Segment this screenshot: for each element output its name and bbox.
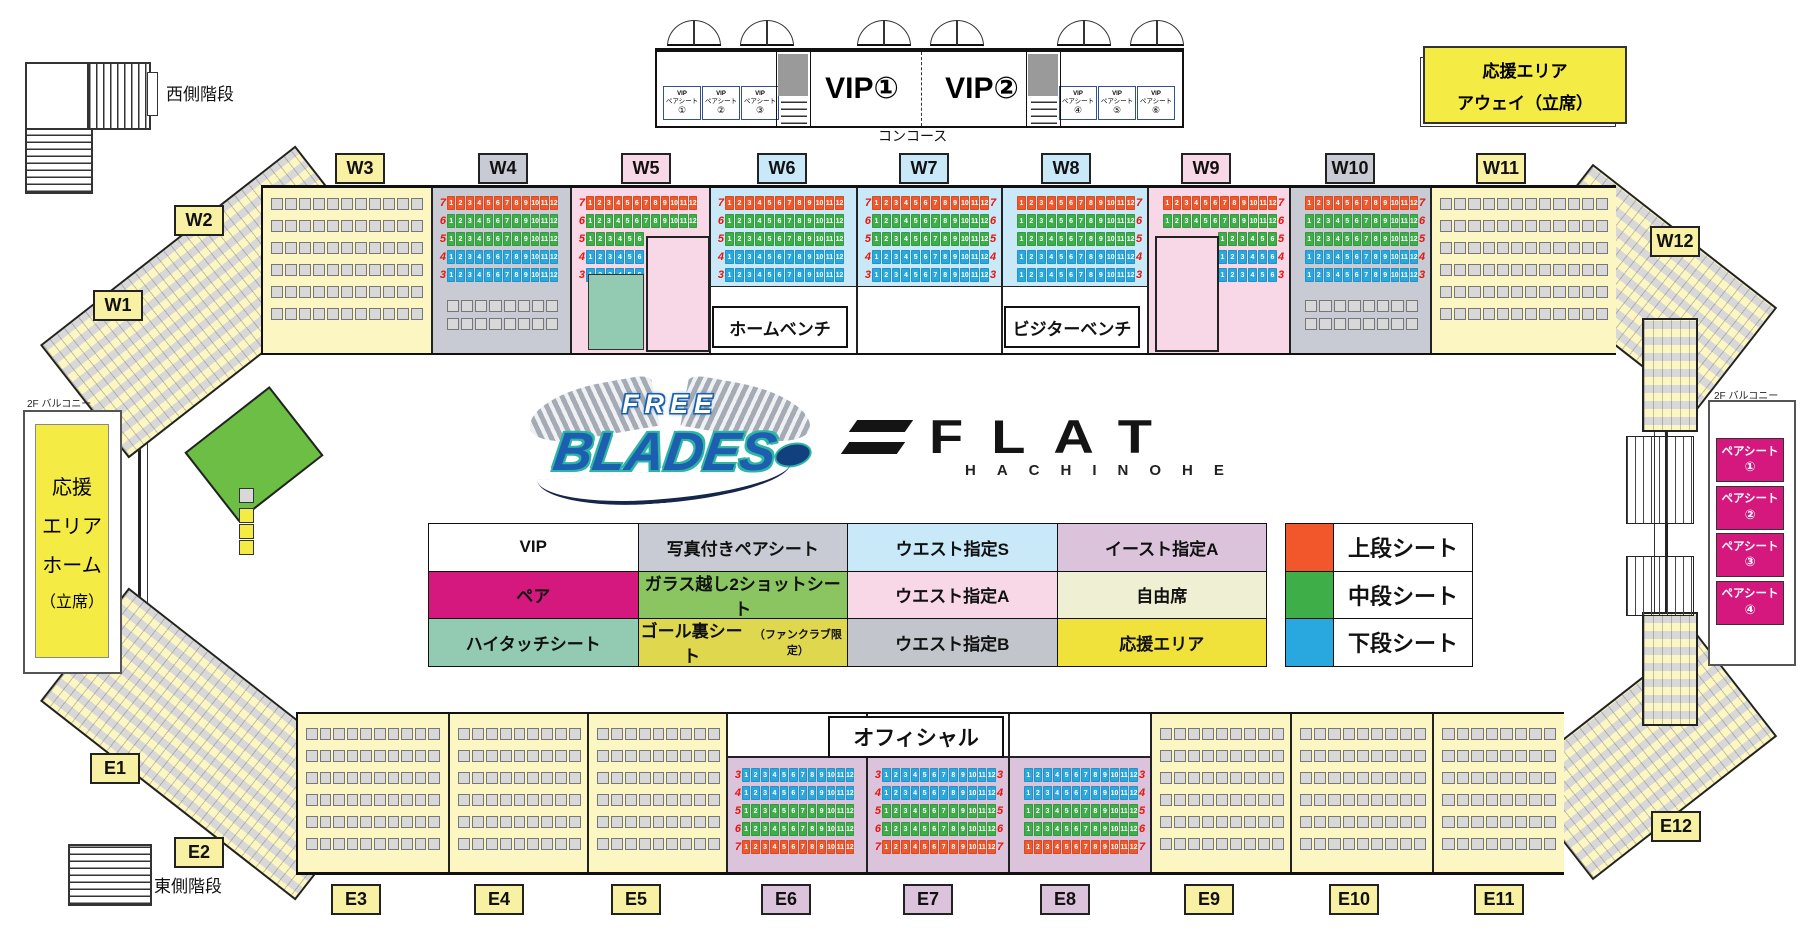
row-number: 3 bbox=[1136, 269, 1148, 281]
seat bbox=[388, 728, 400, 740]
seat-row: 123456789101112 bbox=[725, 232, 844, 246]
edge-marker-box bbox=[239, 488, 254, 503]
seat: 11 bbox=[1120, 822, 1129, 836]
seat: 6 bbox=[633, 196, 641, 210]
seat: 3 bbox=[901, 768, 910, 782]
row-number: 3 bbox=[1139, 769, 1151, 781]
seat: 1 bbox=[447, 250, 455, 264]
home-area-line4: （立席） bbox=[40, 588, 104, 612]
seat bbox=[397, 220, 409, 232]
legend-cell: イースト指定A bbox=[1058, 524, 1268, 572]
tier-legend: 上段シート中段シート下段シート bbox=[1285, 523, 1473, 667]
seat-row: 123456789101112 bbox=[882, 786, 996, 800]
seat: 8 bbox=[941, 250, 950, 264]
seat bbox=[360, 772, 372, 784]
seat: 8 bbox=[1372, 250, 1381, 264]
edge-marker-box bbox=[239, 508, 254, 523]
legend-row: ペアガラス越し2ショットシートウエスト指定A自由席 bbox=[429, 572, 1267, 620]
seat: 6 bbox=[494, 196, 502, 210]
seat: 4 bbox=[1192, 196, 1201, 210]
seat bbox=[1414, 772, 1426, 784]
seat bbox=[1400, 794, 1412, 806]
free-seat-row bbox=[1442, 728, 1556, 740]
seat: 5 bbox=[623, 214, 631, 228]
seat: 4 bbox=[1053, 786, 1062, 800]
seat bbox=[415, 794, 427, 806]
seat: 10 bbox=[1110, 768, 1119, 782]
pair-seat-row bbox=[1305, 300, 1418, 312]
seat bbox=[360, 838, 372, 850]
seat bbox=[1272, 794, 1284, 806]
seat: 4 bbox=[475, 250, 483, 264]
seat: 9 bbox=[1101, 768, 1110, 782]
seat: 5 bbox=[911, 214, 920, 228]
row-number: 5 bbox=[997, 805, 1009, 817]
seat bbox=[1258, 838, 1270, 850]
seat: 1 bbox=[1017, 250, 1026, 264]
seat: 3 bbox=[1043, 822, 1052, 836]
seat-row: 123456 bbox=[586, 250, 644, 264]
seat bbox=[1385, 750, 1397, 762]
seat bbox=[1486, 838, 1499, 850]
seat bbox=[1468, 242, 1480, 254]
seat bbox=[1272, 816, 1284, 828]
seat bbox=[1160, 816, 1172, 828]
seat-row: 123456 bbox=[586, 232, 644, 246]
seat: 12 bbox=[835, 268, 844, 282]
seat bbox=[388, 772, 400, 784]
seat bbox=[1363, 318, 1375, 330]
seat bbox=[1500, 772, 1513, 784]
seat: 5 bbox=[1201, 214, 1210, 228]
seat: 2 bbox=[595, 214, 603, 228]
legend-label: ペア bbox=[516, 582, 550, 607]
seat: 5 bbox=[1343, 232, 1352, 246]
seat: 2 bbox=[882, 250, 891, 264]
hi-touch-area bbox=[588, 274, 644, 350]
pair-seat-label: ペアシート bbox=[1721, 587, 1778, 601]
legend-label: 応援エリア bbox=[1119, 630, 1204, 655]
seat-row: 123456789101112 bbox=[1024, 822, 1138, 836]
row-number: 4 bbox=[859, 251, 871, 263]
wall-line bbox=[776, 52, 777, 126]
legend-cell: ウエスト指定S bbox=[848, 524, 1058, 572]
row-number: 7 bbox=[1136, 197, 1148, 209]
seat: 7 bbox=[785, 268, 794, 282]
seat: 6 bbox=[1067, 232, 1076, 246]
row-number: 7 bbox=[573, 197, 585, 209]
seat bbox=[541, 728, 553, 740]
seat bbox=[1471, 728, 1484, 740]
seat bbox=[486, 728, 498, 740]
tier-row: 下段シート bbox=[1286, 619, 1473, 667]
seat bbox=[299, 198, 311, 210]
seat-row: 123456789101112 bbox=[742, 786, 854, 800]
seat: 10 bbox=[1110, 822, 1119, 836]
seat: 6 bbox=[930, 804, 939, 818]
seat bbox=[383, 264, 395, 276]
seat-section-w9: 1234567891011127123456789101112612345651… bbox=[1147, 188, 1291, 353]
seat bbox=[1442, 816, 1455, 828]
seat bbox=[1314, 794, 1326, 806]
seat: 4 bbox=[901, 214, 910, 228]
seat bbox=[320, 728, 332, 740]
seat bbox=[306, 772, 318, 784]
legend-cell: 写真付きペアシート bbox=[639, 524, 849, 572]
seat: 7 bbox=[939, 840, 948, 854]
seat bbox=[708, 772, 720, 784]
seat: 3 bbox=[606, 232, 615, 246]
seat bbox=[1582, 198, 1594, 210]
seat: 4 bbox=[1047, 214, 1056, 228]
seat bbox=[1244, 794, 1256, 806]
seat: 6 bbox=[789, 840, 797, 854]
seat: 9 bbox=[959, 804, 968, 818]
seat bbox=[486, 838, 498, 850]
row-number: 7 bbox=[990, 197, 1002, 209]
section-label-e9: E9 bbox=[1184, 884, 1234, 915]
door-leaf bbox=[957, 20, 984, 46]
seat bbox=[306, 838, 318, 850]
seat bbox=[369, 242, 381, 254]
seat bbox=[1596, 286, 1608, 298]
seat: 1 bbox=[586, 214, 594, 228]
seat: 9 bbox=[1381, 232, 1390, 246]
vip-box-number: ③ bbox=[756, 105, 764, 115]
seat: 12 bbox=[980, 268, 989, 282]
seat bbox=[546, 300, 558, 312]
seat bbox=[1385, 816, 1397, 828]
seat: 12 bbox=[1410, 268, 1419, 282]
seat: 12 bbox=[550, 268, 558, 282]
seat bbox=[1300, 750, 1312, 762]
row-number: 3 bbox=[859, 269, 871, 281]
seat: 7 bbox=[931, 250, 940, 264]
seat: 1 bbox=[872, 214, 881, 228]
seat bbox=[708, 728, 720, 740]
row-number: 6 bbox=[990, 215, 1002, 227]
seat bbox=[666, 728, 678, 740]
seat-row: 123456789101112 bbox=[882, 768, 996, 782]
section-label-w7: W7 bbox=[899, 153, 949, 184]
right-edge-seating-bottom bbox=[1642, 612, 1698, 726]
seat bbox=[360, 816, 372, 828]
seat: 4 bbox=[901, 196, 910, 210]
seat: 9 bbox=[1240, 214, 1249, 228]
seat: 1 bbox=[882, 804, 891, 818]
seat: 1 bbox=[742, 786, 750, 800]
seat: 6 bbox=[1067, 214, 1076, 228]
row-number: 7 bbox=[712, 197, 724, 209]
seat bbox=[1483, 198, 1495, 210]
row-number: 4 bbox=[573, 251, 585, 263]
seat: 5 bbox=[484, 268, 492, 282]
seat bbox=[1497, 308, 1509, 320]
seat: 2 bbox=[735, 250, 744, 264]
seat: 11 bbox=[1400, 268, 1409, 282]
seat bbox=[1343, 772, 1355, 784]
vip-box-number: ① bbox=[678, 105, 686, 115]
room-area bbox=[646, 236, 710, 352]
seat: 4 bbox=[614, 196, 622, 210]
seat bbox=[1525, 220, 1537, 232]
seat: 9 bbox=[817, 822, 825, 836]
seat bbox=[639, 728, 651, 740]
seat bbox=[1568, 242, 1580, 254]
seat: 11 bbox=[836, 768, 844, 782]
seat: 5 bbox=[780, 768, 788, 782]
wall-line bbox=[1060, 52, 1061, 126]
seat-row: 123456789101112 bbox=[447, 196, 558, 210]
vip-pair-seat-box: VIPペアシート② bbox=[702, 86, 740, 120]
seat bbox=[333, 816, 345, 828]
seat bbox=[1511, 220, 1523, 232]
seat bbox=[1539, 286, 1551, 298]
seat bbox=[306, 750, 318, 762]
seat: 2 bbox=[456, 250, 464, 264]
seat bbox=[1202, 838, 1214, 850]
seat-rows-texture bbox=[1644, 614, 1696, 724]
free-seat-row bbox=[458, 816, 581, 828]
tier-label: 中段シート bbox=[1334, 572, 1473, 620]
seat: 3 bbox=[1324, 214, 1333, 228]
seat bbox=[347, 794, 359, 806]
section-label-w10: W10 bbox=[1325, 153, 1375, 184]
seat: 8 bbox=[808, 840, 816, 854]
seat: 1 bbox=[742, 804, 750, 818]
seat: 3 bbox=[1238, 232, 1247, 246]
seat: 5 bbox=[1201, 196, 1210, 210]
seat bbox=[383, 242, 395, 254]
seat: 8 bbox=[1230, 214, 1239, 228]
seat: 9 bbox=[522, 250, 530, 264]
seat bbox=[1371, 728, 1383, 740]
seat: 2 bbox=[456, 214, 464, 228]
seat: 3 bbox=[892, 232, 901, 246]
home-area-box: 応援 エリア ホーム （立席） bbox=[35, 424, 109, 658]
seat: 4 bbox=[1047, 268, 1056, 282]
flat-mark-bar bbox=[849, 420, 913, 432]
seat: 3 bbox=[466, 214, 474, 228]
seat: 3 bbox=[466, 232, 474, 246]
door-leaf bbox=[694, 20, 721, 46]
section-label-e2: E2 bbox=[174, 837, 224, 868]
seat: 1 bbox=[1305, 214, 1314, 228]
seat bbox=[1486, 728, 1499, 740]
seat: 4 bbox=[1248, 268, 1257, 282]
vip-box-title: VIP bbox=[1073, 91, 1083, 98]
seat bbox=[680, 728, 692, 740]
legend-cell: ガラス越し2ショットシート bbox=[639, 572, 849, 620]
seat: 10 bbox=[1391, 196, 1400, 210]
seat: 6 bbox=[789, 822, 797, 836]
seat: 6 bbox=[1268, 268, 1277, 282]
balcony-pair-seat-3: ペアシート③ bbox=[1716, 533, 1784, 577]
seat: 11 bbox=[1259, 196, 1268, 210]
seat: 1 bbox=[447, 232, 455, 246]
seat-row: 123456789101112 bbox=[447, 232, 558, 246]
vip-box-sub: ペアシート bbox=[1140, 98, 1172, 105]
seat: 4 bbox=[1047, 250, 1056, 264]
free-seat-row bbox=[1160, 816, 1284, 828]
seat: 5 bbox=[1258, 232, 1267, 246]
free-seat-row bbox=[1300, 816, 1426, 828]
seat bbox=[1348, 300, 1360, 312]
seat: 11 bbox=[836, 804, 844, 818]
row-number: 3 bbox=[573, 269, 585, 281]
seat: 1 bbox=[872, 268, 881, 282]
seat bbox=[1371, 794, 1383, 806]
seat: 3 bbox=[745, 268, 754, 282]
seat: 9 bbox=[661, 196, 669, 210]
seat: 4 bbox=[1053, 840, 1062, 854]
seat: 9 bbox=[817, 840, 825, 854]
seat-row: 123456 bbox=[1218, 232, 1277, 246]
seat bbox=[1328, 794, 1340, 806]
seat bbox=[1216, 750, 1228, 762]
seat: 9 bbox=[1381, 214, 1390, 228]
seat bbox=[694, 816, 706, 828]
seat bbox=[527, 838, 539, 850]
seat bbox=[285, 242, 297, 254]
seat bbox=[397, 264, 409, 276]
seat: 3 bbox=[892, 214, 901, 228]
seat bbox=[355, 242, 367, 254]
seat: 2 bbox=[735, 232, 744, 246]
row-number: 6 bbox=[1278, 215, 1290, 227]
seat: 9 bbox=[1096, 268, 1105, 282]
seat: 6 bbox=[921, 250, 930, 264]
free-seat-row bbox=[1440, 242, 1608, 254]
seat: 6 bbox=[921, 196, 930, 210]
seat bbox=[1582, 308, 1594, 320]
seat: 8 bbox=[512, 268, 520, 282]
seat bbox=[341, 220, 353, 232]
seat: 8 bbox=[941, 232, 950, 246]
seat: 3 bbox=[901, 786, 910, 800]
seat: 7 bbox=[785, 196, 794, 210]
seat bbox=[1568, 198, 1580, 210]
seat bbox=[1497, 264, 1509, 276]
seat bbox=[271, 220, 283, 232]
seat: 11 bbox=[970, 268, 979, 282]
seat bbox=[1244, 750, 1256, 762]
seat: 9 bbox=[959, 840, 968, 854]
seat bbox=[1385, 838, 1397, 850]
vip-concourse-structure: VIP① VIP② VIPペアシート①VIPペアシート②VIPペアシート③VIP… bbox=[655, 48, 1184, 128]
seat: 12 bbox=[1268, 196, 1277, 210]
away-area-line2: アウェイ（立席） bbox=[1457, 89, 1593, 114]
seat bbox=[532, 318, 544, 330]
free-seat-row bbox=[306, 772, 440, 784]
seat bbox=[271, 198, 283, 210]
seat bbox=[415, 728, 427, 740]
seat: 4 bbox=[475, 214, 483, 228]
seat bbox=[611, 816, 623, 828]
seat bbox=[666, 838, 678, 850]
seat: 6 bbox=[1353, 232, 1362, 246]
stairs-hatch bbox=[1031, 98, 1057, 124]
seat bbox=[1319, 300, 1331, 312]
legend-cell: ウエスト指定B bbox=[848, 619, 1058, 667]
flat-mark-icon bbox=[845, 420, 909, 460]
seat: 5 bbox=[1057, 250, 1066, 264]
seat: 5 bbox=[920, 768, 929, 782]
seat bbox=[1525, 242, 1537, 254]
seat-row: 123456789101112 bbox=[1305, 196, 1418, 210]
pair-seat-number: ① bbox=[1744, 459, 1755, 475]
seat bbox=[1174, 728, 1186, 740]
seat bbox=[1414, 816, 1426, 828]
seat bbox=[1515, 794, 1528, 806]
row-number: 4 bbox=[1278, 251, 1290, 263]
seat bbox=[1442, 728, 1455, 740]
seat: 10 bbox=[960, 268, 969, 282]
seat bbox=[401, 728, 413, 740]
seat-row: 123456789101112 bbox=[882, 804, 996, 818]
seat bbox=[486, 772, 498, 784]
seat bbox=[415, 816, 427, 828]
seat: 3 bbox=[901, 840, 910, 854]
seat bbox=[1596, 264, 1608, 276]
seat: 7 bbox=[1220, 214, 1229, 228]
seat bbox=[1230, 750, 1242, 762]
seat-type-legend: VIP写真付きペアシートウエスト指定Sイースト指定Aペアガラス越し2ショットシー… bbox=[428, 523, 1267, 667]
seat: 11 bbox=[825, 196, 834, 210]
seat bbox=[411, 242, 423, 254]
seat: 1 bbox=[1163, 214, 1172, 228]
seat: 12 bbox=[835, 214, 844, 228]
seat bbox=[1400, 728, 1412, 740]
seat bbox=[569, 794, 581, 806]
seat: 5 bbox=[484, 232, 492, 246]
seat: 5 bbox=[780, 840, 788, 854]
seat: 2 bbox=[751, 786, 759, 800]
seat: 11 bbox=[836, 840, 844, 854]
seat: 5 bbox=[920, 822, 929, 836]
seat bbox=[680, 750, 692, 762]
seat: 8 bbox=[941, 196, 950, 210]
seat: 9 bbox=[1096, 232, 1105, 246]
seat bbox=[694, 772, 706, 784]
seat bbox=[1454, 220, 1466, 232]
free-seat-row bbox=[1300, 794, 1426, 806]
seat: 12 bbox=[1129, 804, 1138, 818]
seat: 1 bbox=[586, 196, 594, 210]
seat: 11 bbox=[1120, 804, 1129, 818]
free-seat-row bbox=[1442, 750, 1556, 762]
seat bbox=[1500, 750, 1513, 762]
seat bbox=[1391, 300, 1403, 312]
vip-pair-seat-box: VIPペアシート④ bbox=[1059, 86, 1097, 120]
seat bbox=[411, 198, 423, 210]
row-number: 6 bbox=[1136, 215, 1148, 227]
seat: 1 bbox=[1024, 840, 1033, 854]
seat bbox=[514, 728, 526, 740]
seat bbox=[1500, 794, 1513, 806]
seat: 2 bbox=[1027, 232, 1036, 246]
seat: 7 bbox=[503, 250, 511, 264]
seat bbox=[341, 242, 353, 254]
room-area bbox=[1155, 236, 1219, 352]
seat: 1 bbox=[1017, 214, 1026, 228]
seat: 5 bbox=[911, 232, 920, 246]
seat: 10 bbox=[815, 214, 824, 228]
seat: 4 bbox=[1334, 232, 1343, 246]
seat bbox=[680, 772, 692, 784]
seat bbox=[327, 198, 339, 210]
free-seat-row bbox=[1300, 728, 1426, 740]
